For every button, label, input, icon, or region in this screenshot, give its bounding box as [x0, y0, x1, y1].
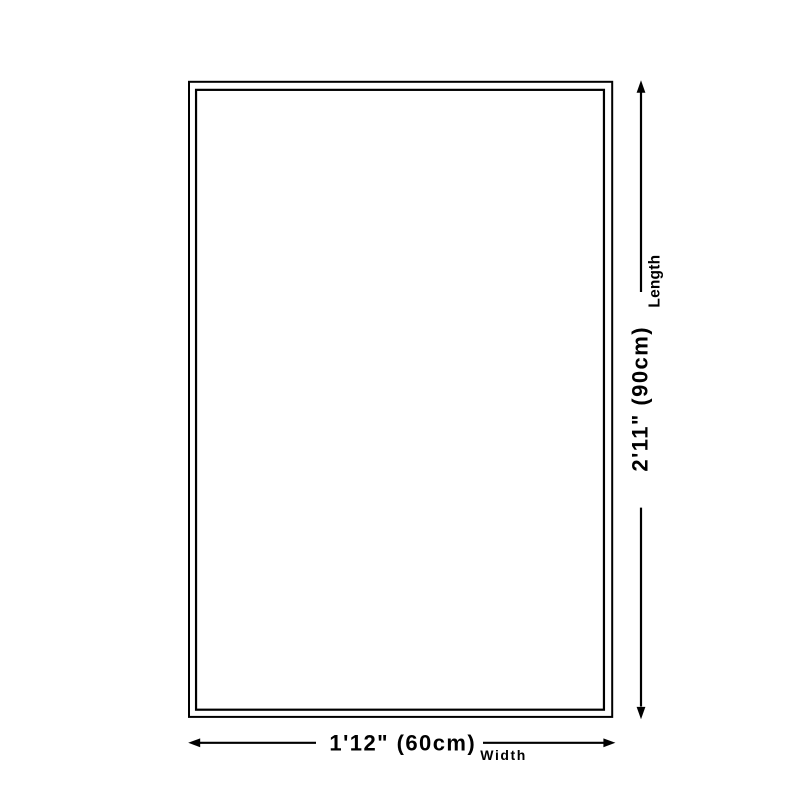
svg-text:2'11" (90cm): 2'11" (90cm) — [628, 326, 653, 472]
svg-text:Width: Width — [480, 747, 527, 763]
svg-text:1'12" (60cm): 1'12" (60cm) — [329, 731, 476, 756]
svg-text:Length: Length — [646, 255, 663, 308]
